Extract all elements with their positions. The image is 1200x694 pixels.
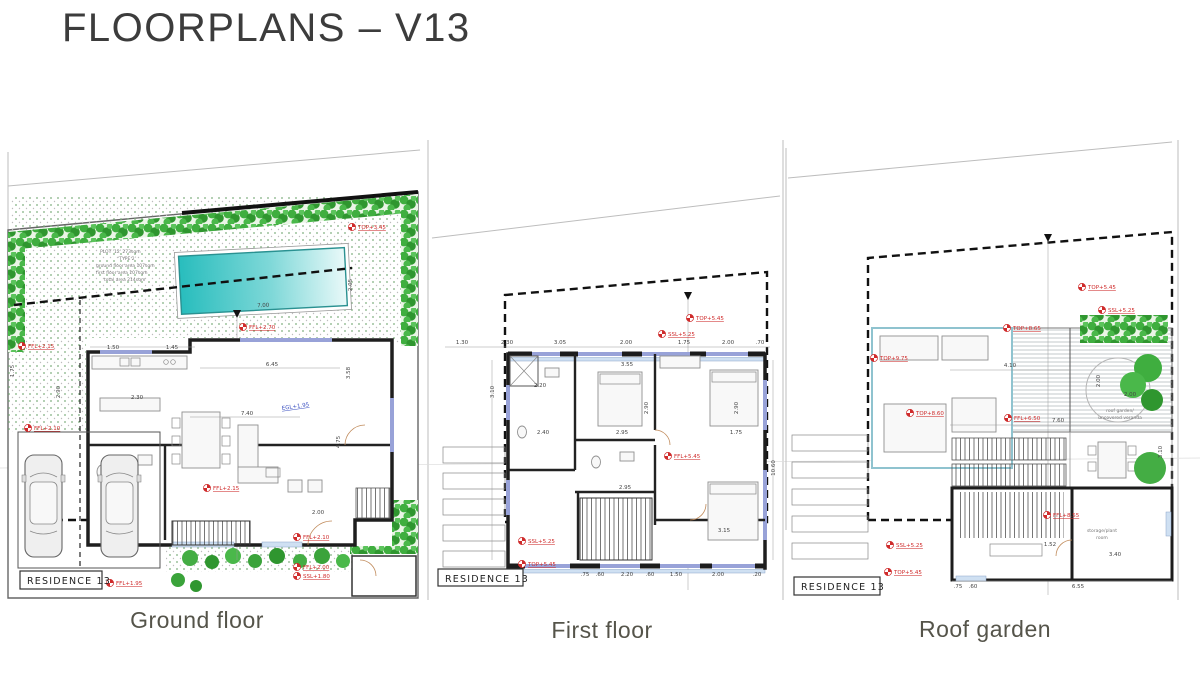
level-marker-icon bbox=[686, 314, 693, 321]
level-marker-icon bbox=[293, 572, 300, 579]
svg-text:1.75: 1.75 bbox=[730, 430, 743, 436]
svg-text:SSL+5.25: SSL+5.25 bbox=[668, 332, 695, 338]
svg-text:2.30: 2.30 bbox=[131, 395, 144, 401]
svg-text:FFL+5.45: FFL+5.45 bbox=[674, 454, 701, 460]
svg-text:7.00: 7.00 bbox=[257, 303, 270, 310]
svg-text:7.40: 7.40 bbox=[241, 411, 254, 417]
level-marker-icon bbox=[870, 354, 877, 361]
residence-label: RESIDENCE 13 bbox=[438, 569, 529, 586]
svg-text:SSL+5.25: SSL+5.25 bbox=[896, 543, 923, 549]
svg-text:6.45: 6.45 bbox=[266, 362, 279, 368]
level-marker-icon bbox=[886, 541, 893, 548]
svg-text:storage/plant: storage/plant bbox=[1087, 528, 1117, 534]
svg-text:.60: .60 bbox=[646, 572, 655, 578]
svg-text:total area 214sqm: total area 214sqm bbox=[104, 277, 145, 283]
svg-text:3.58: 3.58 bbox=[346, 366, 352, 379]
svg-text:TOP+5.45: TOP+5.45 bbox=[1087, 285, 1116, 291]
level-marker-icon bbox=[24, 424, 31, 431]
caption-first-floor: First floor bbox=[482, 617, 722, 644]
svg-text:TOP+8.60: TOP+8.60 bbox=[915, 411, 944, 417]
svg-text:2.00: 2.00 bbox=[722, 340, 735, 346]
svg-text:2.20: 2.20 bbox=[621, 572, 634, 578]
svg-text:3.05: 3.05 bbox=[554, 340, 567, 346]
svg-text:RESIDENCE 13: RESIDENCE 13 bbox=[27, 576, 111, 587]
svg-text:2.00: 2.00 bbox=[1096, 374, 1102, 387]
svg-text:.60: .60 bbox=[969, 584, 978, 590]
svg-text:SSL+1.80: SSL+1.80 bbox=[303, 574, 330, 580]
roof-garden-plan: storage/plant room roof garden/ uncovere… bbox=[786, 142, 1172, 595]
svg-text:1.52: 1.52 bbox=[1044, 542, 1056, 548]
svg-text:6.55: 6.55 bbox=[1072, 584, 1085, 590]
level-marker-icon bbox=[348, 223, 355, 230]
svg-text:1.75: 1.75 bbox=[678, 340, 691, 346]
svg-text:FFL+1.95: FFL+1.95 bbox=[116, 581, 143, 587]
level-marker-icon bbox=[664, 452, 671, 459]
svg-text:TOP+5.45: TOP+5.45 bbox=[893, 570, 922, 576]
svg-text:SSL+5.25: SSL+5.25 bbox=[1108, 308, 1135, 314]
svg-text:1.75: 1.75 bbox=[10, 364, 16, 377]
svg-text:.75: .75 bbox=[581, 572, 590, 578]
level-marker-icon bbox=[203, 484, 210, 491]
svg-text:FFL+2.70: FFL+2.70 bbox=[249, 325, 276, 331]
level-marker-icon bbox=[884, 568, 891, 575]
svg-text:TOP+9.75: TOP+9.75 bbox=[879, 356, 908, 362]
stair-room bbox=[952, 488, 1072, 581]
svg-text:'TYPE 2': 'TYPE 2' bbox=[118, 256, 136, 262]
svg-text:2.30: 2.30 bbox=[501, 340, 514, 346]
stairs bbox=[580, 498, 652, 560]
svg-text:TOP+5.45: TOP+5.45 bbox=[527, 562, 556, 568]
level-marker-icon bbox=[1098, 306, 1105, 313]
svg-text:.20: .20 bbox=[753, 572, 762, 578]
svg-text:3.55: 3.55 bbox=[621, 362, 634, 368]
svg-text:first floor area 107sqm: first floor area 107sqm bbox=[96, 270, 147, 276]
svg-text:FFL+2.10: FFL+2.10 bbox=[34, 426, 61, 432]
svg-text:FFL+2.15: FFL+2.15 bbox=[213, 486, 240, 492]
svg-text:2.00: 2.00 bbox=[312, 510, 325, 516]
svg-text:2.40: 2.40 bbox=[537, 430, 550, 436]
svg-text:FFL+2.15: FFL+2.15 bbox=[28, 344, 55, 350]
room-label: uncovered veranda bbox=[1098, 415, 1142, 421]
level-marker-icon bbox=[293, 533, 300, 540]
level-marker-icon bbox=[1078, 283, 1085, 290]
svg-text:2.00: 2.00 bbox=[620, 340, 633, 346]
svg-text:.75: .75 bbox=[954, 584, 963, 590]
svg-text:ground floor area 107sqm: ground floor area 107sqm bbox=[96, 263, 155, 269]
exterior-stairs bbox=[356, 488, 390, 518]
svg-text:FFL+6.50: FFL+6.50 bbox=[1014, 416, 1041, 422]
level-marker-icon bbox=[1003, 324, 1010, 331]
svg-text:RESIDENCE 13: RESIDENCE 13 bbox=[445, 574, 529, 585]
svg-text:2.90: 2.90 bbox=[734, 401, 740, 414]
residence-label: RESIDENCE 13 bbox=[20, 571, 111, 589]
level-marker-icon bbox=[518, 537, 525, 544]
svg-text:2.95: 2.95 bbox=[619, 485, 632, 491]
level-marker-icon bbox=[1004, 414, 1011, 421]
first-floor-plan: 1.30 2.30 3.05 2.00 1.75 2.00 .70 3.55 2… bbox=[432, 196, 780, 590]
svg-text:1.50: 1.50 bbox=[107, 345, 120, 351]
floorplan-sheet: PLOT '12' 273sqm 'TYPE 2' ground floor a… bbox=[0, 0, 1200, 694]
car-top-view bbox=[98, 455, 141, 557]
residence-label: RESIDENCE 13 bbox=[794, 577, 885, 595]
pergola bbox=[443, 447, 505, 567]
svg-text:3.40: 3.40 bbox=[1109, 552, 1122, 558]
storage-room: storage/plant room bbox=[1072, 488, 1172, 580]
svg-text:4.10: 4.10 bbox=[1004, 363, 1017, 369]
svg-text:2.05: 2.05 bbox=[348, 278, 354, 291]
pergola-slats bbox=[952, 464, 1066, 486]
level-marker-icon bbox=[518, 560, 525, 567]
svg-text:TOP+5.45: TOP+5.45 bbox=[695, 316, 724, 322]
svg-text:3.10: 3.10 bbox=[1158, 445, 1164, 458]
svg-text:3.15: 3.15 bbox=[718, 528, 731, 534]
svg-text:room: room bbox=[1096, 535, 1108, 541]
level-marker-icon bbox=[906, 409, 913, 416]
outdoor-room bbox=[352, 556, 416, 596]
svg-text:.60: .60 bbox=[596, 572, 605, 578]
svg-text:7.60: 7.60 bbox=[1052, 418, 1065, 424]
svg-text:10.60: 10.60 bbox=[771, 460, 777, 476]
caption-ground-floor: Ground floor bbox=[77, 607, 317, 634]
pergola-slats bbox=[952, 438, 1066, 460]
svg-text:RESIDENCE 13: RESIDENCE 13 bbox=[801, 582, 885, 593]
level-marker-icon bbox=[239, 323, 246, 330]
room-label: roof garden/ bbox=[1106, 408, 1134, 414]
section-arrow-icon bbox=[684, 292, 692, 300]
stairs bbox=[172, 521, 250, 545]
svg-text:1.45: 1.45 bbox=[166, 345, 179, 351]
svg-text:2.90: 2.90 bbox=[644, 401, 650, 414]
level-marker-icon bbox=[658, 330, 665, 337]
swimming-pool: 7.00 bbox=[174, 243, 351, 318]
pergola bbox=[792, 435, 868, 559]
svg-text:FFL+2.00: FFL+2.00 bbox=[303, 565, 330, 571]
level-marker-icon bbox=[293, 563, 300, 570]
svg-text:.70: .70 bbox=[756, 340, 765, 346]
svg-text:2.90: 2.90 bbox=[56, 385, 62, 398]
section-arrow-icon bbox=[1044, 234, 1052, 242]
svg-text:TOP+3.45: TOP+3.45 bbox=[357, 225, 386, 231]
svg-text:FFL+2.10: FFL+2.10 bbox=[303, 535, 330, 541]
svg-text:2.00: 2.00 bbox=[1124, 392, 1137, 398]
level-marker-icon bbox=[1043, 511, 1050, 518]
svg-text:2.20: 2.20 bbox=[534, 383, 547, 389]
car-top-view bbox=[22, 455, 65, 557]
svg-text:SSL+5.25: SSL+5.25 bbox=[528, 539, 555, 545]
level-marker-icon bbox=[18, 342, 25, 349]
svg-text:2.00: 2.00 bbox=[712, 572, 725, 578]
svg-text:1.50: 1.50 bbox=[670, 572, 683, 578]
svg-text:PLOT '12' 273sqm: PLOT '12' 273sqm bbox=[100, 249, 141, 255]
svg-text:1.30: 1.30 bbox=[456, 340, 469, 346]
ground-floor-plan: PLOT '12' 273sqm 'TYPE 2' ground floor a… bbox=[8, 150, 420, 598]
caption-roof-garden: Roof garden bbox=[865, 616, 1105, 643]
svg-text:4.75: 4.75 bbox=[336, 435, 342, 448]
svg-text:TOP+8.65: TOP+8.65 bbox=[1012, 326, 1041, 332]
svg-text:FFL+8.55: FFL+8.55 bbox=[1053, 513, 1080, 519]
svg-text:2.95: 2.95 bbox=[616, 430, 629, 436]
svg-text:3.10: 3.10 bbox=[490, 385, 496, 398]
